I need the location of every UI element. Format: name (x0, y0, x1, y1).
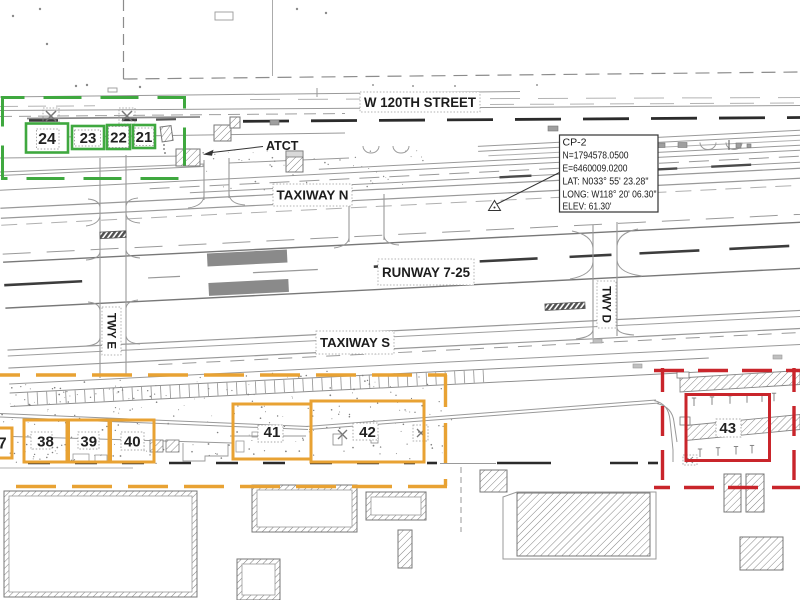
svg-text:22: 22 (110, 129, 127, 146)
svg-text:ATCT: ATCT (266, 139, 299, 153)
svg-text:CP-2: CP-2 (563, 138, 587, 149)
svg-text:RUNWAY 7-25: RUNWAY 7-25 (382, 265, 470, 280)
svg-text:37: 37 (0, 436, 7, 453)
svg-text:TAXIWAY N: TAXIWAY N (277, 188, 349, 203)
svg-text:N=1794578.0500: N=1794578.0500 (563, 151, 629, 162)
svg-text:21: 21 (136, 129, 153, 146)
svg-text:24: 24 (38, 131, 56, 148)
svg-text:LAT: N033° 55' 23.28": LAT: N033° 55' 23.28" (563, 177, 649, 188)
svg-text:E=6460009.0200: E=6460009.0200 (563, 164, 628, 175)
svg-text:42: 42 (359, 424, 376, 441)
svg-text:23: 23 (80, 130, 97, 147)
svg-text:ELEV: 61.30': ELEV: 61.30' (563, 202, 612, 213)
svg-text:39: 39 (80, 433, 97, 450)
svg-text:41: 41 (264, 424, 281, 441)
svg-text:43: 43 (719, 420, 736, 437)
svg-text:40: 40 (124, 433, 141, 450)
svg-text:LONG: W118° 20' 06.30": LONG: W118° 20' 06.30" (563, 190, 657, 201)
svg-text:TWY E: TWY E (105, 313, 117, 350)
svg-text:TAXIWAY S: TAXIWAY S (320, 335, 390, 350)
svg-text:38: 38 (37, 433, 54, 450)
svg-text:W 120TH STREET: W 120TH STREET (364, 95, 477, 110)
svg-text:TWY D: TWY D (600, 286, 612, 323)
